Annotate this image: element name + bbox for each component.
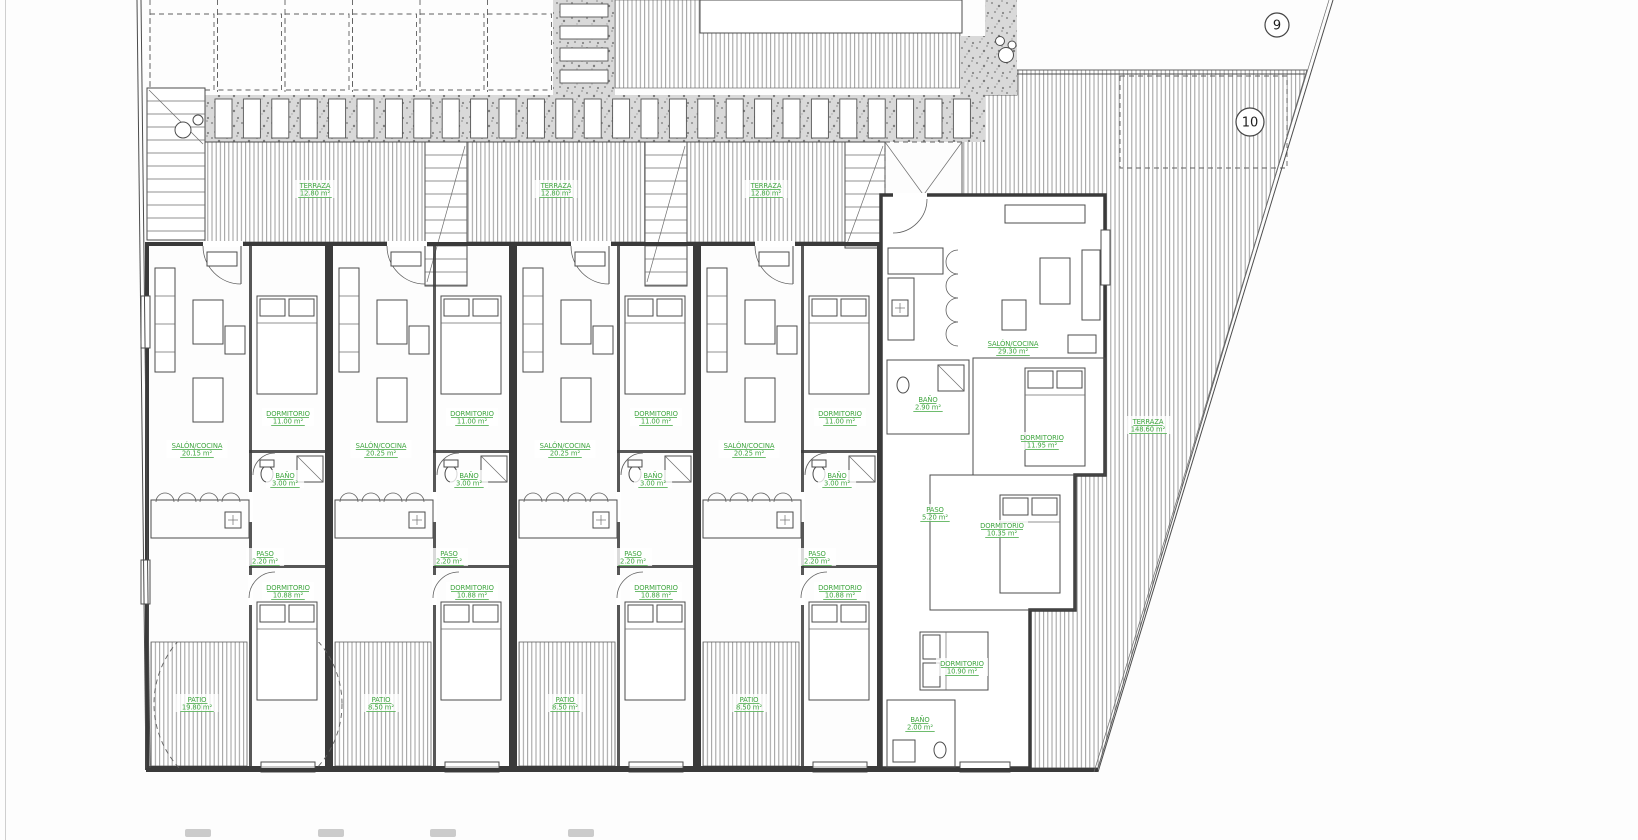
paver-slab — [385, 99, 402, 138]
paver-slab — [811, 99, 828, 138]
unit-module-4 — [697, 241, 881, 772]
cropped-fragment — [430, 829, 456, 837]
paver-slab — [357, 99, 374, 138]
paver-slab — [698, 99, 715, 138]
pool — [700, 0, 962, 33]
paver-slab — [560, 70, 608, 83]
unit-module-1 — [145, 241, 329, 772]
plot-marker-number: 10 — [1242, 116, 1259, 131]
paver-slab — [527, 99, 544, 138]
cropped-drawing-fragments — [185, 829, 594, 837]
paver-slab — [613, 99, 630, 138]
paver-slab — [272, 99, 289, 138]
paver-slab — [560, 4, 608, 17]
paver-slab — [584, 99, 601, 138]
paver-slab — [755, 99, 772, 138]
planter-icon — [999, 48, 1014, 63]
paver-slab — [300, 99, 317, 138]
cropped-fragment — [318, 829, 344, 837]
planter-icon — [996, 37, 1005, 46]
cropped-fragment — [568, 829, 594, 837]
unit-module-2 — [329, 241, 513, 772]
paver-slab — [641, 99, 658, 138]
cropped-fragment — [185, 829, 211, 837]
paver-slab — [215, 99, 232, 138]
paver-slab — [669, 99, 686, 138]
paver-slab — [556, 99, 573, 138]
paver-slab — [560, 26, 608, 39]
parking-bays — [150, 0, 555, 92]
paver-slab — [925, 99, 942, 138]
walkway — [205, 0, 1017, 142]
paver-slab — [726, 99, 743, 138]
plot-marker-number: 9 — [1273, 19, 1281, 34]
paver-slab — [329, 99, 346, 138]
paver-slab — [897, 99, 914, 138]
paver-slab — [414, 99, 431, 138]
paver-slab — [783, 99, 800, 138]
paver-slab — [868, 99, 885, 138]
paver-slab — [243, 99, 260, 138]
paver-slab — [953, 99, 970, 138]
floor-plan-viewer: TERRAZA12.80 m²TERRAZA12.80 m²TERRAZA12.… — [0, 0, 1638, 840]
paver-slab — [499, 99, 516, 138]
paver-slab — [560, 48, 608, 61]
floor-plan-canvas: TERRAZA12.80 m²TERRAZA12.80 m²TERRAZA12.… — [0, 0, 1638, 840]
paver-slab — [840, 99, 857, 138]
paver-slab — [442, 99, 459, 138]
paver-slab — [471, 99, 488, 138]
unit-module-3 — [513, 241, 697, 772]
